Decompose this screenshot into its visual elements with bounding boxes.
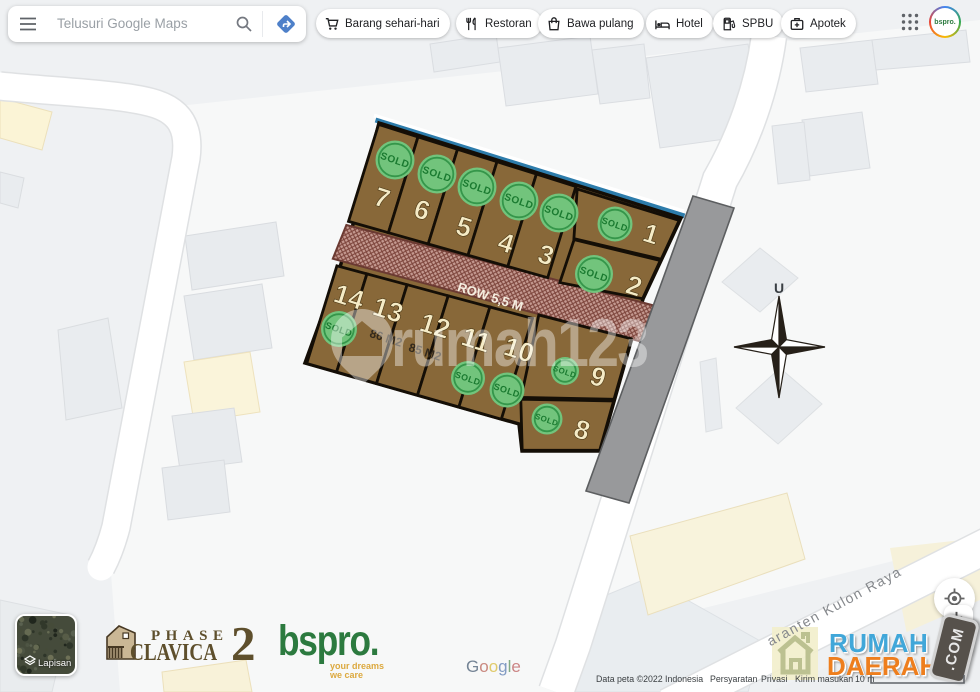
svg-text:U: U <box>774 280 784 296</box>
svg-text:rumah123: rumah123 <box>391 305 647 381</box>
